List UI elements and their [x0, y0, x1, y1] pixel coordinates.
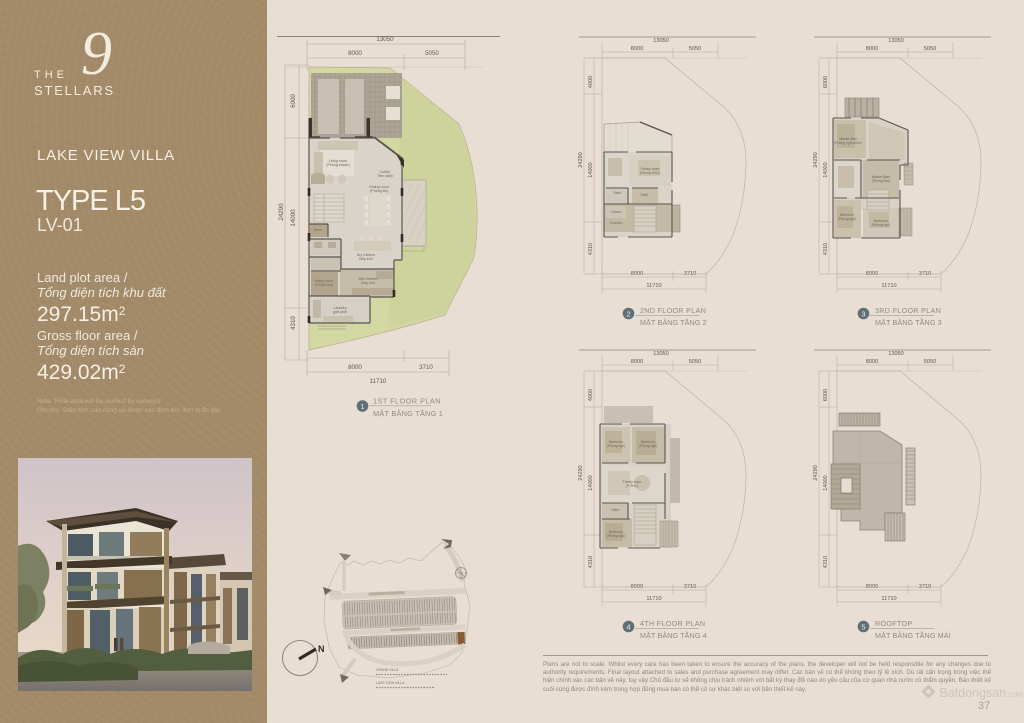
svg-text:11710: 11710: [646, 283, 661, 289]
svg-text:Store: Store: [314, 228, 323, 232]
svg-text:4000: 4000: [588, 76, 594, 88]
svg-text:(Phòng ngủ): (Phòng ngủ): [639, 444, 658, 448]
svg-text:4310: 4310: [588, 556, 594, 568]
svg-text:Bếp khô: Bếp khô: [359, 257, 372, 261]
svg-text:(Phòng SHC): (Phòng SHC): [640, 171, 660, 175]
svg-text:Closet: Closet: [611, 210, 621, 214]
svg-text:4310: 4310: [823, 556, 829, 568]
svg-text:4310: 4310: [290, 316, 297, 330]
svg-text:24290: 24290: [278, 203, 285, 221]
svg-text:(P.Giặt thô): (P.Giặt thô): [315, 283, 333, 287]
svg-text:(P.SHC): (P.SHC): [626, 484, 638, 488]
svg-text:5050: 5050: [924, 359, 936, 365]
svg-text:(Phòng ngủ): (Phòng ngủ): [607, 444, 626, 448]
svg-text:MẶT BẰNG TẦNG MÁI: MẶT BẰNG TẦNG MÁI: [875, 630, 951, 640]
svg-text:5050: 5050: [425, 50, 439, 57]
svg-text:4310: 4310: [823, 243, 829, 255]
svg-text:24290: 24290: [578, 465, 584, 481]
svg-text:(Phòng ngủ): (Phòng ngủ): [872, 223, 891, 227]
svg-text:4310: 4310: [588, 243, 594, 255]
svg-text:(Phòng khách): (Phòng khách): [326, 163, 349, 167]
svg-text:MẶT BẰNG TẦNG 4: MẶT BẰNG TẦNG 4: [640, 630, 707, 640]
svg-text:24290: 24290: [578, 152, 584, 168]
svg-text:2: 2: [626, 310, 630, 319]
svg-text:3: 3: [861, 310, 865, 319]
svg-text:5050: 5050: [689, 46, 701, 52]
svg-text:24290: 24290: [813, 152, 819, 168]
svg-text:(Phòng ăn): (Phòng ăn): [370, 189, 388, 193]
svg-text:1: 1: [360, 402, 364, 411]
svg-text:Tiền sảnh: Tiền sảnh: [377, 174, 393, 178]
svg-text:24290: 24290: [813, 465, 819, 481]
svg-text:13050: 13050: [653, 38, 669, 44]
svg-text:Toilet: Toilet: [611, 508, 619, 512]
svg-text:13050: 13050: [888, 351, 904, 357]
svg-text:14000: 14000: [588, 475, 594, 491]
svg-text:(Phòng ngủ): (Phòng ngủ): [607, 534, 626, 538]
svg-text:8000: 8000: [348, 364, 362, 371]
svg-text:Toilet: Toilet: [613, 191, 621, 195]
svg-text:1ST FLOOR PLAN: 1ST FLOOR PLAN: [373, 397, 441, 406]
svg-text:11710: 11710: [881, 283, 896, 289]
svg-text:8000: 8000: [866, 46, 878, 52]
svg-text:LAKE VIEW VILLA: LAKE VIEW VILLA: [376, 681, 405, 685]
svg-text:(Phòng ngủ): (Phòng ngủ): [838, 217, 857, 221]
svg-text:14000: 14000: [823, 162, 829, 178]
svg-text:MẶT BẰNG TẦNG 2: MẶT BẰNG TẦNG 2: [640, 317, 707, 327]
svg-text:3710: 3710: [419, 364, 433, 371]
svg-text:8000: 8000: [631, 359, 643, 365]
svg-text:Bếp ướt: Bếp ướt: [361, 281, 374, 285]
svg-text:5: 5: [861, 623, 865, 632]
svg-text:13050: 13050: [888, 38, 904, 44]
svg-text:14000: 14000: [290, 209, 297, 227]
svg-text:13050: 13050: [653, 351, 669, 357]
svg-text:3RD FLOOR PLAN: 3RD FLOOR PLAN: [875, 306, 941, 315]
svg-text:6000: 6000: [290, 94, 297, 108]
svg-text:11710: 11710: [881, 596, 896, 602]
svg-text:(Phòng ngủ chính): (Phòng ngủ chính): [834, 141, 862, 145]
svg-text:6000: 6000: [823, 389, 829, 401]
svg-text:(Phòng tắm): (Phòng tắm): [872, 178, 891, 183]
svg-text:8000: 8000: [866, 359, 878, 365]
svg-text:N: N: [318, 644, 325, 654]
svg-text:4TH FLOOR PLAN: 4TH FLOOR PLAN: [640, 619, 705, 628]
svg-text:MẶT BẰNG TẦNG 3: MẶT BẰNG TẦNG 3: [875, 317, 942, 327]
svg-text:5050: 5050: [689, 359, 701, 365]
svg-text:11710: 11710: [646, 596, 661, 602]
svg-text:4: 4: [626, 623, 630, 632]
svg-text:5050: 5050: [924, 46, 936, 52]
svg-text:Toilet: Toilet: [640, 193, 648, 197]
svg-text:11710: 11710: [370, 378, 387, 385]
svg-text:ROOFTOP: ROOFTOP: [875, 619, 913, 628]
svg-text:giặt phơi: giặt phơi: [333, 310, 347, 314]
svg-text:14000: 14000: [823, 475, 829, 491]
svg-text:14000: 14000: [588, 162, 594, 178]
svg-text:Corridor: Corridor: [610, 221, 623, 225]
svg-text:GRAND VILLA: GRAND VILLA: [376, 668, 399, 672]
svg-text:13050: 13050: [376, 36, 394, 43]
svg-text:8000: 8000: [348, 50, 362, 57]
svg-text:MẶT BẰNG TẦNG 1: MẶT BẰNG TẦNG 1: [373, 408, 443, 418]
svg-text:4000: 4000: [588, 389, 594, 401]
svg-text:6000: 6000: [823, 76, 829, 88]
svg-text:2ND FLOOR PLAN: 2ND FLOOR PLAN: [640, 306, 706, 315]
svg-text:8000: 8000: [631, 46, 643, 52]
